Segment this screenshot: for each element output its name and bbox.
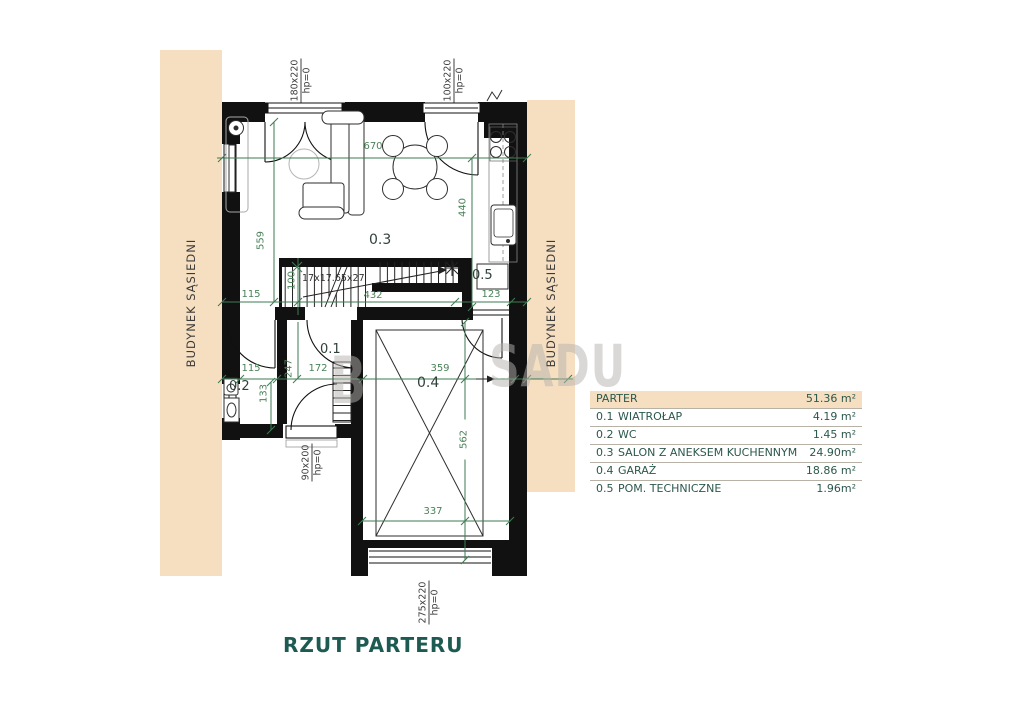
legend-row-area: 18.86 m²	[806, 464, 856, 477]
dim-337: 337	[421, 506, 445, 517]
garage-door-size: 275x220	[418, 581, 430, 625]
stairs-dimensions-label: 17x17.65x27	[302, 273, 365, 284]
walls	[222, 102, 527, 576]
garage-door-sill: hp=0	[430, 589, 441, 615]
dim-562: 562	[459, 420, 470, 460]
area-legend-table: PARTER 51.36 m² 0.1 WIATROŁAP 4.19 m² 0.…	[590, 391, 862, 498]
legend-row-id: 0.5	[596, 482, 618, 495]
garage-door-label: 275x220 hp=0	[418, 580, 441, 626]
watermark-left: B	[330, 348, 366, 413]
legend-row-id: 0.4	[596, 464, 618, 477]
room-label-0-2: 0.2	[229, 380, 250, 393]
dim-133: 133	[259, 374, 270, 414]
dim-247: 247	[284, 349, 295, 389]
neighbor-label-left: BUDYNEK SĄSIEDNI	[184, 233, 198, 373]
legend-row-0-3: 0.3 SALON Z ANEKSEM KUCHENNYM 24.90m²	[590, 445, 862, 463]
legend-row-name: WC	[618, 428, 813, 441]
legend-row-area: 4.19 m²	[813, 410, 856, 423]
door-entry-label: 90x200 hp=0	[301, 440, 324, 486]
legend-row-area: 24.90m²	[809, 446, 856, 459]
neighbor-label-right: BUDYNEK SĄSIEDNI	[544, 233, 558, 373]
room-label-0-1: 0.1	[320, 343, 341, 356]
floor-plan-canvas: B SADU BUDYNEK SĄSIEDNI BUDYNEK SĄSIEDNI…	[0, 0, 1025, 725]
legend-row-name: GARAŻ	[618, 464, 806, 477]
legend-row-name: SALON Z ANEKSEM KUCHENNYM	[618, 446, 809, 459]
legend-row-id: 0.3	[596, 446, 618, 459]
legend-row-0-1: 0.1 WIATROŁAP 4.19 m²	[590, 409, 862, 427]
room-label-0-4: 0.4	[417, 377, 439, 390]
dim-670: 670	[353, 141, 393, 152]
door-top-size: 100x220	[443, 59, 455, 103]
legend-row-area: 1.45 m²	[813, 428, 856, 441]
dim-559: 559	[256, 221, 267, 261]
legend-header-row: PARTER 51.36 m²	[590, 391, 862, 409]
window-top-sill: hp=0	[302, 67, 313, 93]
page-title: RZUT PARTERU	[283, 633, 464, 657]
legend-row-id: 0.1	[596, 410, 618, 423]
legend-row-area: 1.96m²	[816, 482, 856, 495]
dim-440: 440	[458, 188, 469, 228]
dim-172: 172	[306, 363, 330, 374]
dim-115-low: 115	[239, 363, 263, 374]
dim-100: 100	[287, 261, 298, 301]
door-top-sill: hp=0	[455, 67, 466, 93]
legend-row-id: 0.2	[596, 428, 618, 441]
room-label-0-5: 0.5	[472, 269, 493, 282]
legend-row-name: POM. TECHNICZNE	[618, 482, 816, 495]
legend-header-area: 51.36 m²	[806, 392, 856, 405]
legend-header-label: PARTER	[596, 392, 806, 405]
dim-115-hall: 115	[239, 289, 263, 300]
window-top-label: 180x220 hp=0	[290, 58, 313, 104]
legend-row-0-2: 0.2 WC 1.45 m²	[590, 427, 862, 445]
dim-359: 359	[428, 363, 452, 374]
dim-432: 432	[361, 290, 385, 301]
door-top-label: 100x220 hp=0	[443, 58, 466, 104]
door-entry-size: 90x200	[301, 444, 313, 482]
legend-row-0-4: 0.4 GARAŻ 18.86 m²	[590, 463, 862, 481]
room-label-0-3: 0.3	[369, 234, 391, 247]
door-entry-sill: hp=0	[313, 449, 324, 475]
legend-row-0-5: 0.5 POM. TECHNICZNE 1.96m²	[590, 481, 862, 498]
window-top-size: 180x220	[290, 59, 302, 103]
dim-123: 123	[479, 289, 503, 300]
legend-row-name: WIATROŁAP	[618, 410, 813, 423]
